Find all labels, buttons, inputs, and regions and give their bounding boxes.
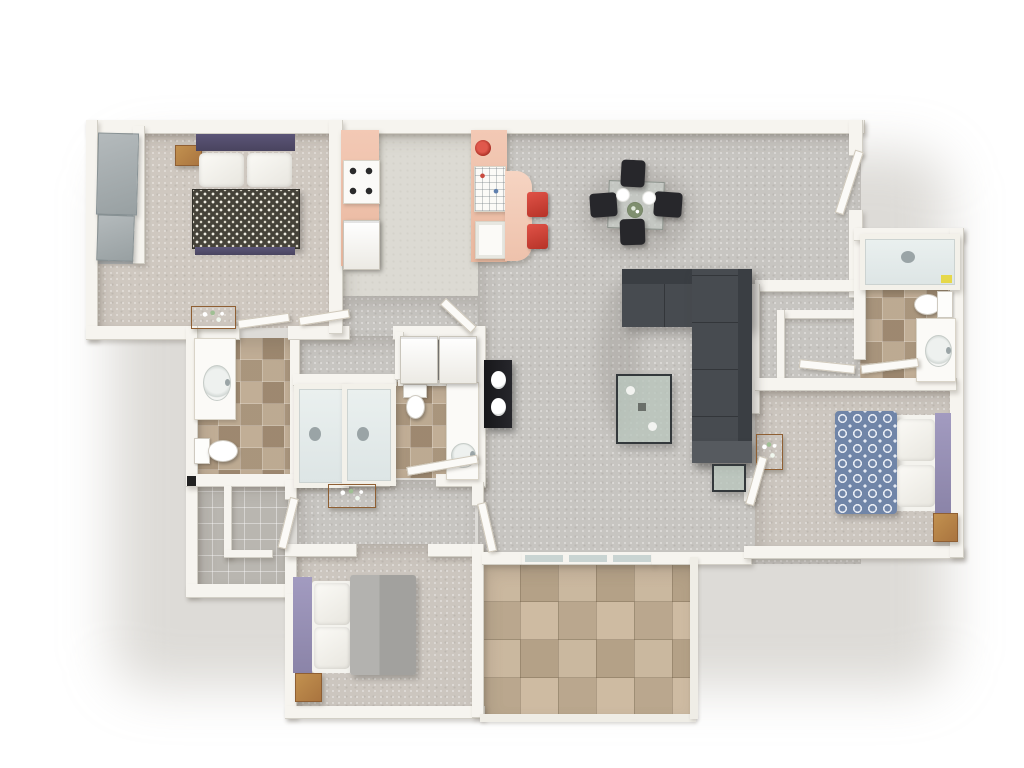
red-flower-bowl — [475, 140, 491, 156]
dryer — [439, 336, 477, 384]
bar-stool-1 — [527, 192, 548, 217]
kitchen-base-cabinet — [343, 220, 380, 270]
stove — [343, 160, 380, 204]
toilet-bowl-bathroom2 — [406, 395, 425, 419]
wall-hallcloset-inner-v — [777, 310, 785, 382]
patio-bottom-rail — [480, 714, 696, 722]
wall-hallcloset-top — [755, 280, 857, 292]
island-sink — [475, 221, 506, 259]
bed-2-pillow-bottom — [897, 465, 935, 507]
sectional-sofa-vertical — [692, 269, 752, 463]
coffee-table-item-3 — [638, 403, 646, 411]
wall-left-upper — [86, 120, 98, 340]
table-centerpiece-plant — [627, 202, 643, 218]
vanity-bathroom1 — [194, 338, 236, 420]
tv-speaker-top — [491, 371, 506, 389]
bathtub-1 — [294, 384, 349, 488]
dinner-plate-1 — [616, 188, 630, 202]
wall-patio-left — [472, 544, 484, 718]
bed-1-foot-strip — [195, 247, 295, 255]
dish-rack — [474, 166, 506, 212]
faucet-bathroom3 — [946, 347, 951, 354]
toilet-bowl-bathroom1 — [208, 440, 238, 462]
wall-closet-inner-horizontal — [224, 550, 273, 558]
patio-sliding-door — [522, 552, 654, 565]
faucet-bathroom1 — [225, 379, 230, 386]
coffee-table-item-2 — [648, 422, 657, 431]
floor-plan-canvas — [0, 0, 1024, 768]
toilet-tank-bathroom3 — [937, 291, 953, 318]
bathtub-2-faucet — [357, 427, 369, 441]
console-entry-flowers — [328, 484, 376, 508]
dinner-plate-2 — [642, 191, 656, 205]
nightstand-bedroom2 — [933, 513, 958, 542]
bed-3 — [293, 575, 417, 675]
washer — [400, 336, 438, 384]
sofa-chaise-end — [692, 441, 752, 463]
bed-1-duvet — [192, 189, 300, 249]
sliding-door-glass — [525, 555, 651, 562]
dining-chair-bottom — [620, 219, 646, 246]
bathtub-2 — [342, 384, 396, 486]
vanity-bathroom3 — [916, 318, 956, 382]
tv-console — [484, 360, 512, 428]
wall-closet-inner-vertical — [224, 486, 232, 558]
bed-1 — [192, 134, 298, 255]
bar-stool-2 — [527, 224, 548, 249]
walk-in-closet-floor — [196, 480, 288, 588]
wall-bottom-mid — [652, 552, 752, 565]
wall-bedroom2-bottom — [744, 546, 964, 559]
bed-3-pillow-top — [314, 583, 350, 625]
bed-1-headboard — [196, 134, 295, 151]
bed-1-pillow-right — [247, 153, 292, 187]
bed-2-pillow-top — [897, 419, 935, 461]
coffee-table — [616, 374, 672, 444]
towel-yellow — [941, 275, 952, 283]
dining-chair-right — [653, 191, 683, 218]
wall-closet-bottom — [186, 584, 288, 598]
wall-hallcloset-inner-h — [777, 310, 858, 319]
patio-right-rail — [690, 557, 698, 719]
floor-doorstop — [187, 476, 196, 486]
wall-bedroom3-bottom — [285, 706, 485, 719]
bed-2-duvet — [835, 411, 897, 514]
sofa-back-right — [738, 269, 752, 463]
bed-2 — [835, 411, 953, 515]
wall-bedroom3-top-left — [285, 544, 357, 557]
patio-floor — [482, 564, 692, 716]
bed-1-pillow-left — [199, 153, 244, 187]
bed-2-headboard — [935, 413, 951, 513]
closet-shelf-upper — [96, 132, 139, 215]
dining-chair-top — [620, 159, 645, 187]
bed-3-duvet — [350, 575, 416, 675]
closet-shelf-lower — [96, 214, 135, 261]
bed-3-headboard — [293, 577, 312, 673]
bathtub-3-faucet — [901, 251, 915, 263]
side-table-glass — [712, 464, 746, 492]
nightstand-bedroom3 — [295, 673, 322, 702]
coffee-table-item-1 — [626, 386, 635, 395]
wall-bottom-left-segment — [482, 552, 524, 565]
tv-speaker-bottom — [491, 398, 506, 416]
bed-3-pillow-bottom — [314, 627, 350, 669]
bathtub-1-faucet — [309, 427, 321, 441]
console-bedroom1-flowers — [191, 306, 236, 329]
dining-chair-left — [589, 192, 618, 218]
